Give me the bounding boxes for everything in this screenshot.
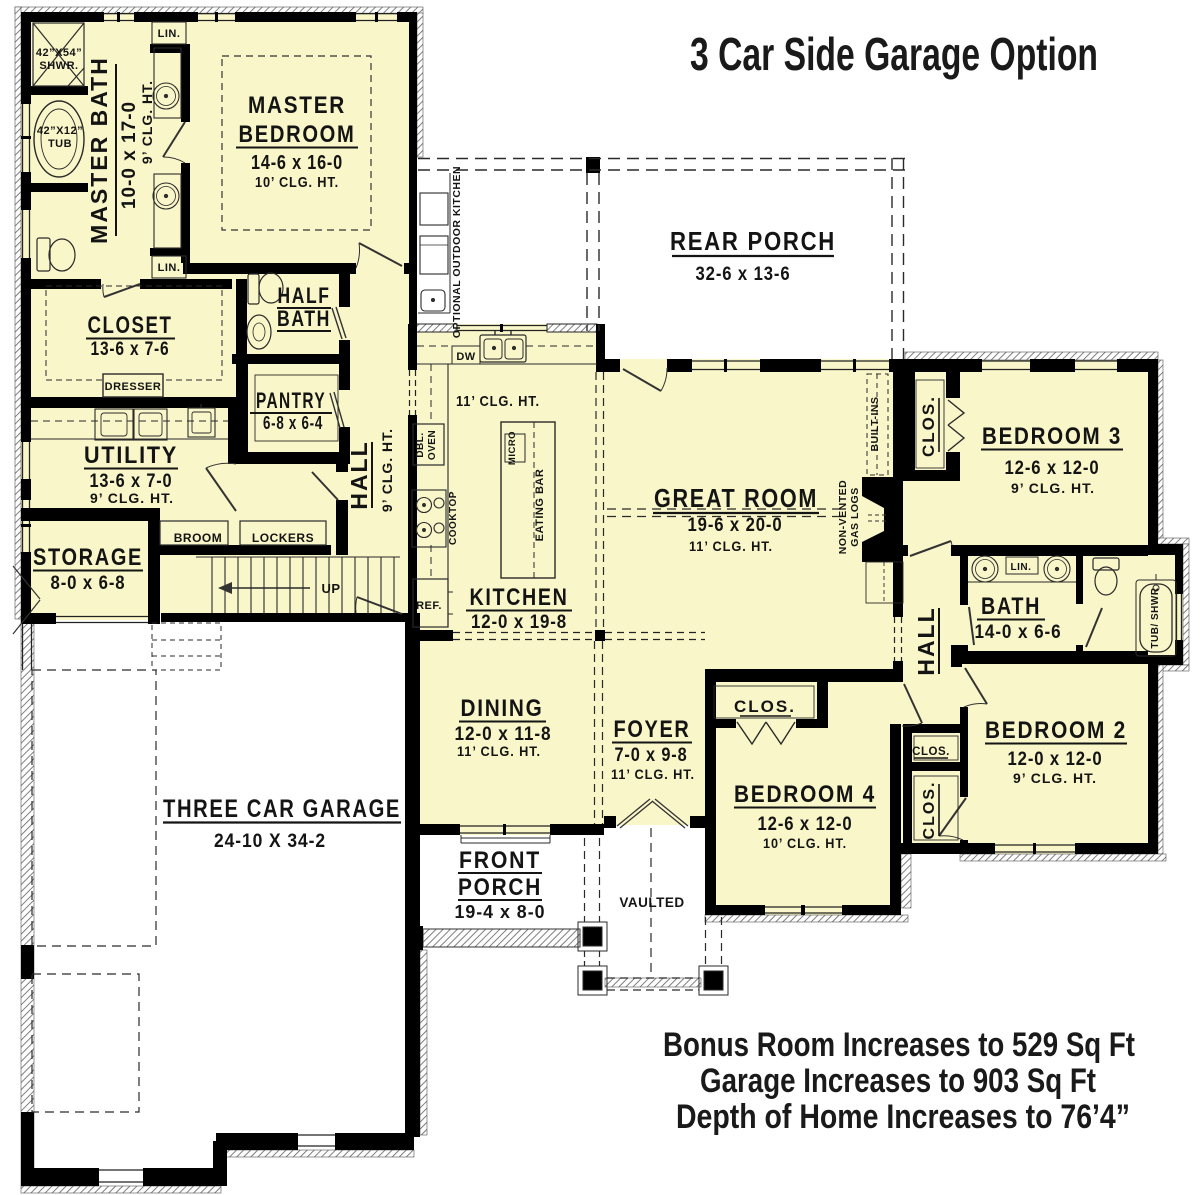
svg-text:10-0 x 17-0: 10-0 x 17-0: [119, 101, 140, 209]
svg-text:8-0 x 6-8: 8-0 x 6-8: [51, 573, 126, 594]
svg-text:BATH: BATH: [981, 593, 1041, 620]
svg-text:11’ CLG. HT.: 11’ CLG. HT.: [456, 393, 540, 410]
svg-text:BEDROOM 3: BEDROOM 3: [982, 423, 1122, 450]
svg-text:THREE CAR GARAGE: THREE CAR GARAGE: [163, 795, 401, 823]
svg-text:13-6 x 7-6: 13-6 x 7-6: [91, 339, 170, 360]
svg-text:BEDROOM 2: BEDROOM 2: [985, 717, 1127, 744]
svg-text:BUILT-INS: BUILT-INS: [869, 396, 881, 451]
svg-text:42”X54”: 42”X54”: [36, 47, 82, 59]
svg-text:NON-VENTED: NON-VENTED: [837, 480, 849, 554]
svg-text:MICRO: MICRO: [507, 431, 518, 465]
svg-text:12-0 x 11-8: 12-0 x 11-8: [455, 724, 552, 745]
svg-text:PANTRY: PANTRY: [256, 388, 326, 413]
svg-text:DBL.: DBL.: [415, 432, 426, 457]
svg-text:12-6 x 12-0: 12-6 x 12-0: [758, 814, 853, 835]
svg-text:14-0 x 6-6: 14-0 x 6-6: [975, 622, 1062, 643]
svg-text:CLOS.: CLOS.: [919, 395, 938, 457]
svg-text:BATH: BATH: [277, 306, 331, 331]
svg-text:Garage Increases to 903 Sq Ft: Garage Increases to 903 Sq Ft: [700, 1062, 1096, 1100]
svg-text:9’ CLG. HT.: 9’ CLG. HT.: [1011, 480, 1095, 496]
svg-text:HALF: HALF: [278, 283, 331, 308]
svg-text:LIN.: LIN.: [158, 262, 181, 274]
svg-text:CLOS.: CLOS.: [912, 746, 950, 758]
svg-text:FRONT: FRONT: [459, 847, 541, 874]
svg-text:GREAT ROOM: GREAT ROOM: [654, 483, 818, 513]
svg-text:LOCKERS: LOCKERS: [252, 531, 314, 545]
svg-text:VAULTED: VAULTED: [619, 895, 684, 910]
svg-text:10’ CLG. HT.: 10’ CLG. HT.: [255, 174, 339, 191]
svg-text:HALL: HALL: [913, 606, 939, 675]
svg-text:6-8 x 6-4: 6-8 x 6-4: [263, 413, 323, 433]
svg-text:COOKTOP: COOKTOP: [448, 491, 459, 545]
svg-text:CLOS.: CLOS.: [921, 781, 938, 840]
svg-text:11’ CLG. HT.: 11’ CLG. HT.: [689, 538, 773, 554]
svg-text:7-0 x 9-8: 7-0 x 9-8: [615, 745, 688, 766]
svg-text:DW: DW: [456, 351, 475, 363]
svg-text:MASTER BATH: MASTER BATH: [86, 56, 112, 244]
svg-text:MASTER: MASTER: [248, 92, 346, 119]
svg-text:19-6 x 20-0: 19-6 x 20-0: [688, 515, 783, 536]
svg-text:9’ CLG. HT.: 9’ CLG. HT.: [379, 428, 395, 512]
svg-text:LIN.: LIN.: [158, 28, 181, 40]
svg-text:CLOS.: CLOS.: [734, 697, 796, 716]
svg-text:32-6 x 13-6: 32-6 x 13-6: [696, 264, 791, 285]
svg-text:KITCHEN: KITCHEN: [470, 584, 569, 611]
svg-text:UP: UP: [321, 581, 340, 596]
svg-text:BROOM: BROOM: [174, 531, 223, 545]
svg-text:EATING BAR: EATING BAR: [534, 469, 546, 542]
svg-text:12-0 x 12-0: 12-0 x 12-0: [1008, 749, 1103, 770]
svg-text:12-6 x 12-0: 12-6 x 12-0: [1005, 458, 1100, 479]
svg-text:OVEN: OVEN: [427, 430, 438, 460]
svg-text:BEDROOM 4: BEDROOM 4: [734, 781, 876, 808]
svg-text:SHWR.: SHWR.: [39, 60, 78, 72]
svg-text:PORCH: PORCH: [458, 874, 542, 901]
svg-text:UTILITY: UTILITY: [84, 442, 178, 469]
svg-text:9’ CLG. HT.: 9’ CLG. HT.: [139, 80, 155, 164]
svg-text:19-4 x 8-0: 19-4 x 8-0: [455, 902, 546, 922]
svg-text:REF.: REF.: [416, 600, 442, 612]
svg-text:42”X12”: 42”X12”: [37, 125, 83, 137]
svg-text:DINING: DINING: [461, 695, 544, 722]
svg-text:Bonus Room Increases to 529 Sq: Bonus Room Increases to 529 Sq Ft: [663, 1026, 1135, 1064]
svg-text:TUB/ SHWR: TUB/ SHWR: [1150, 587, 1161, 648]
svg-text:TUB: TUB: [48, 138, 72, 150]
svg-text:11’ CLG. HT.: 11’ CLG. HT.: [457, 743, 541, 759]
svg-text:14-6 x 16-0: 14-6 x 16-0: [251, 152, 343, 174]
svg-text:11’ CLG. HT.: 11’ CLG. HT.: [611, 766, 695, 782]
svg-text:CLOSET: CLOSET: [88, 312, 173, 339]
svg-text:STORAGE: STORAGE: [33, 544, 143, 571]
svg-text:LIN.: LIN.: [1011, 562, 1032, 573]
svg-text:GAS LOGS: GAS LOGS: [849, 487, 861, 546]
svg-text:24-10 X 34-2: 24-10 X 34-2: [214, 831, 326, 852]
svg-text:12-0 x 19-8: 12-0 x 19-8: [471, 612, 567, 633]
svg-text:3 Car Side Garage Option: 3 Car Side Garage Option: [690, 28, 1098, 80]
svg-text:HALL: HALL: [346, 440, 372, 509]
svg-text:9’ CLG. HT.: 9’ CLG. HT.: [1013, 770, 1097, 786]
svg-text:Depth of Home Increases to 76’: Depth of Home Increases to 76’4”: [676, 1098, 1130, 1136]
svg-text:REAR PORCH: REAR PORCH: [670, 226, 836, 256]
svg-text:BEDROOM: BEDROOM: [239, 121, 356, 148]
svg-text:DRESSER: DRESSER: [105, 381, 162, 393]
svg-text:10’ CLG. HT.: 10’ CLG. HT.: [763, 835, 847, 851]
svg-text:13-6 x 7-0: 13-6 x 7-0: [90, 471, 173, 492]
svg-text:OPTIONAL OUTDOOR KITCHEN: OPTIONAL OUTDOOR KITCHEN: [451, 166, 463, 338]
svg-text:FOYER: FOYER: [614, 716, 691, 743]
svg-text:9’ CLG. HT.: 9’ CLG. HT.: [90, 490, 174, 506]
